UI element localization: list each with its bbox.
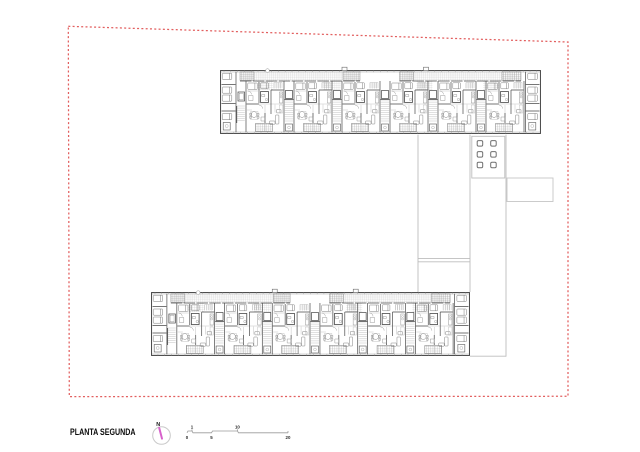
svg-text:20: 20 (286, 435, 291, 440)
svg-text:N: N (156, 422, 160, 428)
svg-text:PLANTA SEGUNDA: PLANTA SEGUNDA (70, 427, 136, 437)
svg-text:10: 10 (235, 424, 240, 429)
